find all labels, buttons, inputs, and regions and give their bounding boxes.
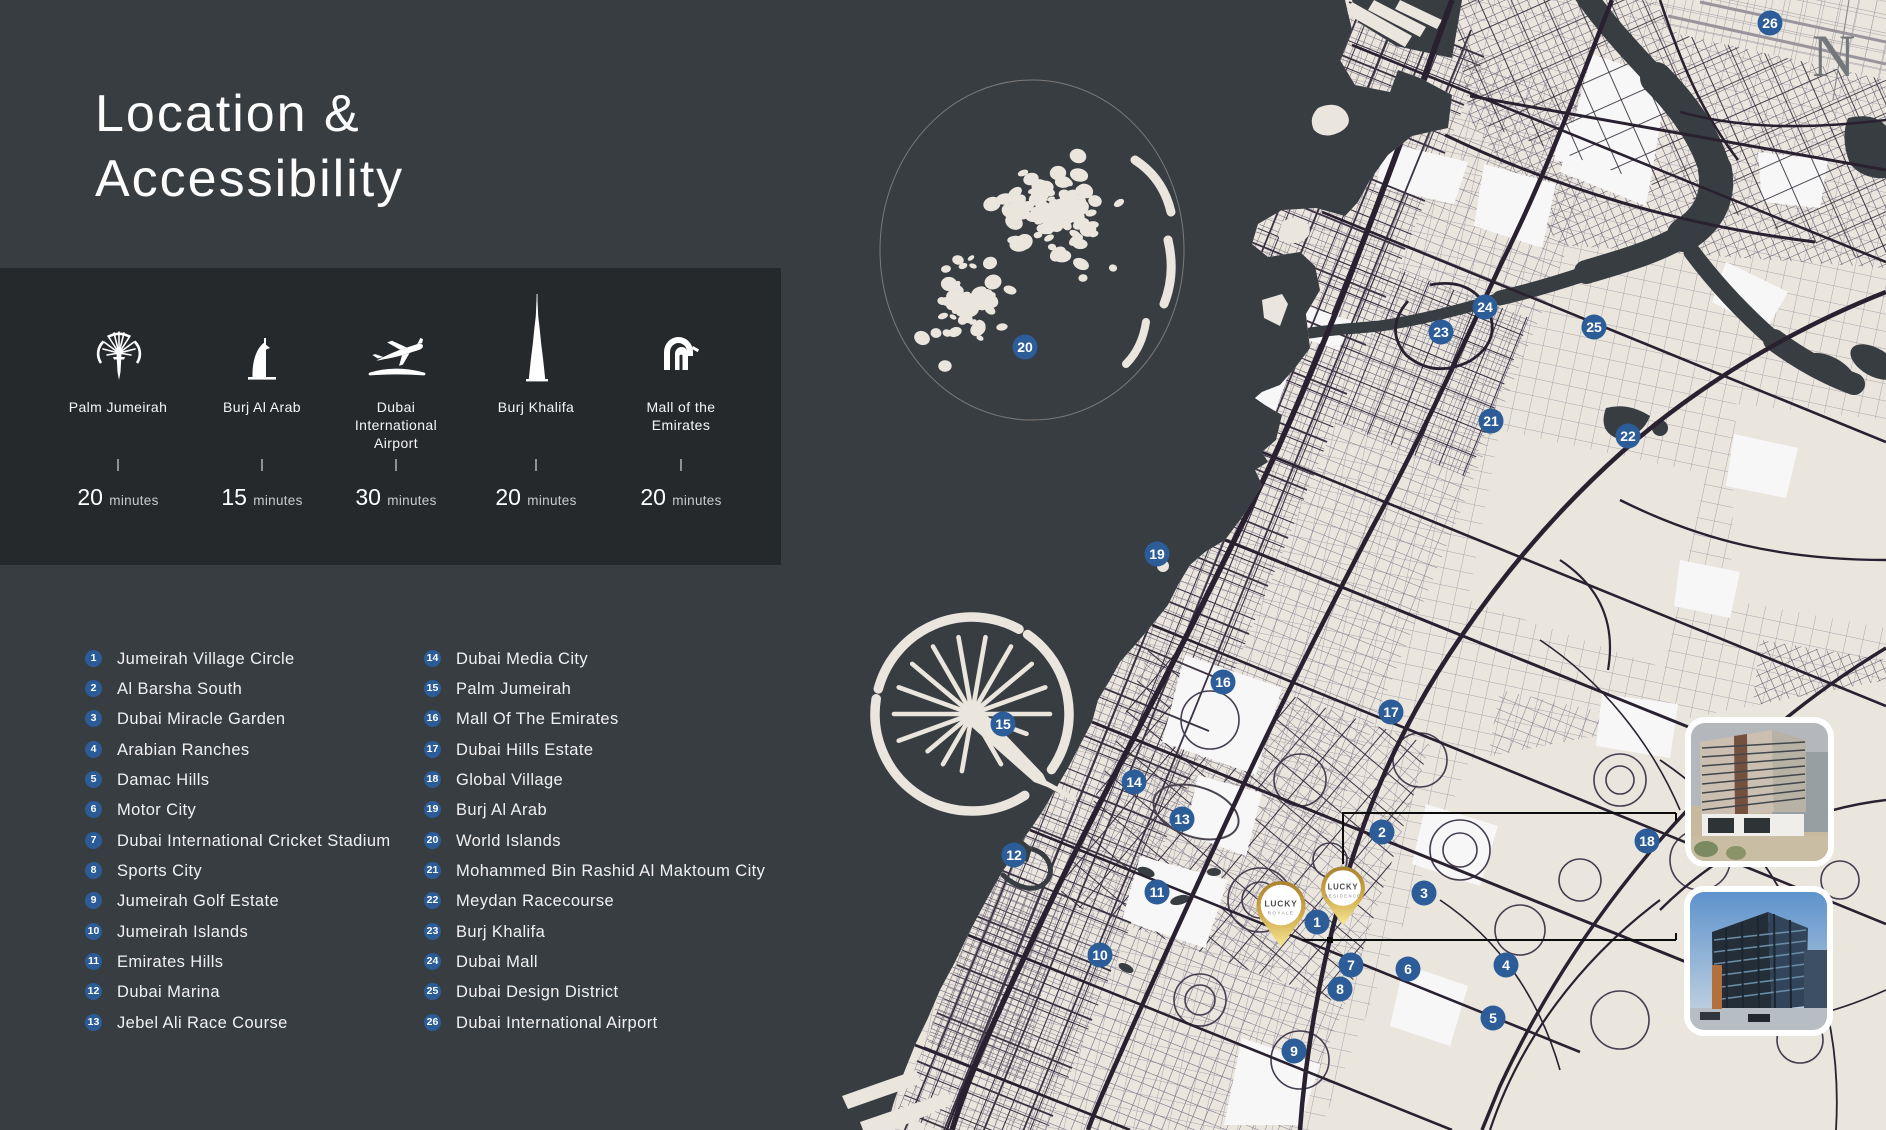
svg-text:ROYALE: ROYALE xyxy=(1268,911,1295,916)
svg-text:1: 1 xyxy=(1313,914,1321,930)
svg-text:4: 4 xyxy=(1502,957,1510,973)
svg-text:26: 26 xyxy=(1762,15,1778,31)
svg-text:19: 19 xyxy=(1149,546,1165,562)
svg-text:5: 5 xyxy=(1489,1010,1497,1026)
svg-text:RESIDENCE: RESIDENCE xyxy=(1324,894,1361,899)
svg-text:2: 2 xyxy=(1378,824,1386,840)
svg-text:13: 13 xyxy=(1174,811,1190,827)
svg-text:6: 6 xyxy=(1404,961,1412,977)
svg-text:11: 11 xyxy=(1150,884,1165,900)
svg-text:LUCKY: LUCKY xyxy=(1264,899,1297,909)
svg-text:12: 12 xyxy=(1006,847,1022,863)
svg-text:LUCKY: LUCKY xyxy=(1328,883,1359,892)
svg-text:7: 7 xyxy=(1347,957,1355,973)
svg-text:24: 24 xyxy=(1477,299,1493,315)
svg-text:23: 23 xyxy=(1433,324,1449,340)
svg-text:14: 14 xyxy=(1126,774,1142,790)
svg-text:8: 8 xyxy=(1336,981,1344,997)
svg-text:16: 16 xyxy=(1215,674,1231,690)
svg-text:21: 21 xyxy=(1483,413,1499,429)
svg-text:25: 25 xyxy=(1586,319,1602,335)
svg-text:22: 22 xyxy=(1620,428,1636,444)
svg-text:18: 18 xyxy=(1639,833,1655,849)
svg-text:17: 17 xyxy=(1383,704,1399,720)
svg-text:15: 15 xyxy=(995,716,1011,732)
svg-text:9: 9 xyxy=(1290,1043,1298,1059)
svg-text:N: N xyxy=(1812,23,1855,89)
svg-text:10: 10 xyxy=(1092,947,1108,963)
svg-text:20: 20 xyxy=(1017,339,1033,355)
svg-text:3: 3 xyxy=(1420,885,1428,901)
